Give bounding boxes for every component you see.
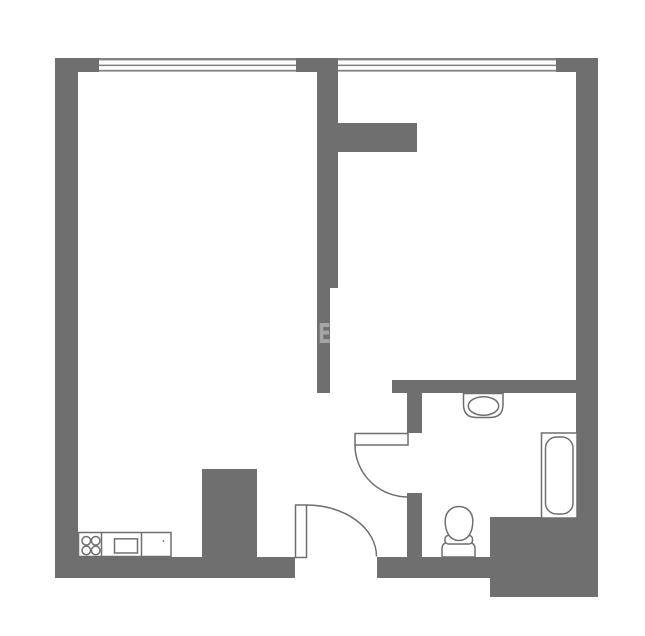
floor-plan: E xyxy=(0,0,645,636)
bathroom-door-swing xyxy=(355,445,408,497)
wall-corner-block xyxy=(490,517,598,597)
wall-top-left-segment xyxy=(55,58,99,72)
window-line xyxy=(99,70,296,72)
wall-right xyxy=(576,58,598,597)
toilet xyxy=(442,507,475,558)
window-line xyxy=(338,65,556,67)
hob-burner xyxy=(91,537,100,546)
window-line xyxy=(338,70,556,72)
window-top-right xyxy=(338,58,556,72)
floor-plan-page: E xyxy=(0,0,645,636)
kitchen-fixtures xyxy=(79,533,172,557)
wall-closet-stub xyxy=(338,123,417,152)
window-top-left xyxy=(99,58,296,72)
wall-bathroom-jamb-upper xyxy=(407,393,422,433)
bathtub-outer xyxy=(542,433,578,518)
window-line xyxy=(338,58,556,60)
wash-basin xyxy=(464,394,504,418)
entry-door-leaf xyxy=(296,505,307,558)
wall-left xyxy=(55,58,78,578)
watermark-letter: E xyxy=(318,317,331,350)
window-line xyxy=(99,65,296,67)
toilet-bowl xyxy=(445,507,473,541)
wall-bathroom-top xyxy=(392,380,576,393)
window-line xyxy=(99,58,296,60)
wall-bottom-left-segment xyxy=(55,557,295,578)
wall-kitchen-block xyxy=(202,469,257,557)
wall-bottom-middle-segment xyxy=(377,557,491,578)
entry-door-swing xyxy=(307,505,377,557)
bathroom-door-leaf xyxy=(355,434,408,446)
oven xyxy=(115,539,138,553)
bathtub xyxy=(542,433,578,518)
doors xyxy=(296,434,409,558)
hob-burner xyxy=(91,546,100,555)
wall-room-divider-upper xyxy=(317,58,338,288)
counter-dot xyxy=(163,540,165,542)
wall-bathroom-jamb-lower xyxy=(407,493,422,557)
hob-burner xyxy=(82,546,91,555)
hob-burner xyxy=(82,537,91,546)
